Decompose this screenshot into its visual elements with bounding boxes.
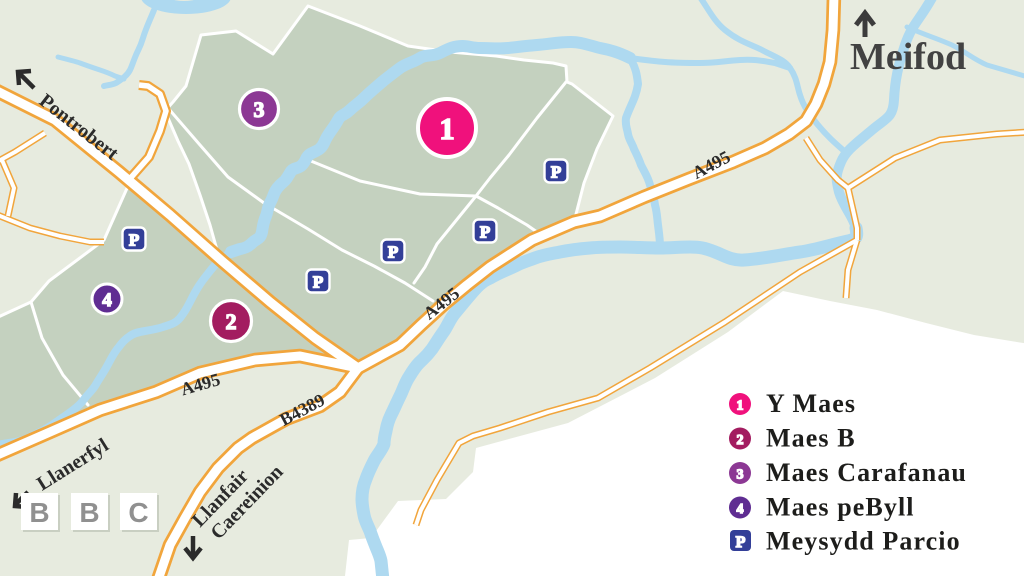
svg-text:Maes peByll: Maes peByll xyxy=(766,493,915,522)
svg-text:2: 2 xyxy=(737,433,744,448)
svg-text:Maes Carafanau: Maes Carafanau xyxy=(766,458,967,487)
svg-text:3: 3 xyxy=(254,97,265,122)
svg-text:2: 2 xyxy=(226,309,237,334)
svg-text:P: P xyxy=(736,534,746,551)
svg-text:Y Maes: Y Maes xyxy=(766,389,856,418)
svg-text:4: 4 xyxy=(102,290,112,311)
svg-text:B: B xyxy=(29,497,49,528)
svg-text:P: P xyxy=(313,273,323,292)
svg-text:P: P xyxy=(551,163,561,182)
svg-text:4: 4 xyxy=(737,502,744,517)
svg-text:B: B xyxy=(79,497,99,528)
svg-text:3: 3 xyxy=(737,468,744,483)
svg-text:P: P xyxy=(388,243,398,262)
svg-text:Meysydd Parcio: Meysydd Parcio xyxy=(766,527,961,556)
svg-text:Meifod: Meifod xyxy=(850,36,966,78)
svg-text:1: 1 xyxy=(439,111,455,146)
svg-text:P: P xyxy=(480,223,490,242)
svg-text:C: C xyxy=(128,497,148,528)
svg-text:P: P xyxy=(129,231,139,250)
svg-text:Maes B: Maes B xyxy=(766,424,856,453)
svg-text:1: 1 xyxy=(737,399,744,414)
